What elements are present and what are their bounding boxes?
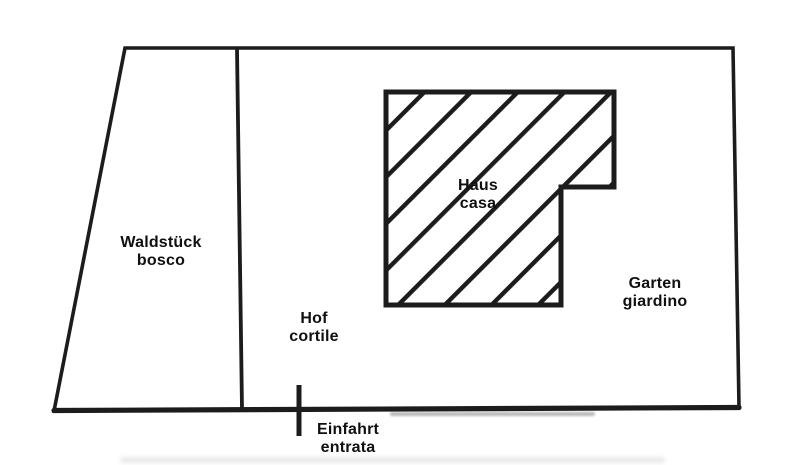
region-label-einfahrt-de: Einfahrt <box>317 421 379 439</box>
region-label-waldstueck: Waldstück bosco <box>120 234 201 270</box>
region-label-hof-it: cortile <box>289 328 338 346</box>
region-label-einfahrt: Einfahrt entrata <box>317 421 379 457</box>
region-label-garten-it: giardino <box>623 293 688 311</box>
parcel-divider-line <box>237 49 242 409</box>
house-footprint <box>386 92 614 305</box>
region-label-einfahrt-it: entrata <box>321 439 376 457</box>
plan-drawing <box>0 0 800 465</box>
region-label-haus-it: casa <box>460 195 496 213</box>
region-label-garten-de: Garten <box>629 275 682 293</box>
property-bottom-edge <box>54 408 739 411</box>
region-label-waldstueck-de: Waldstück <box>120 234 201 252</box>
region-label-garten: Garten giardino <box>623 275 688 311</box>
property-plan-canvas: Waldstück bosco Hof cortile Haus casa Ga… <box>0 0 800 465</box>
region-label-hof: Hof cortile <box>289 310 338 346</box>
region-label-haus: Haus casa <box>458 177 498 213</box>
region-label-waldstueck-it: bosco <box>137 252 185 270</box>
region-label-hof-de: Hof <box>300 310 327 328</box>
region-label-haus-de: Haus <box>458 177 498 195</box>
